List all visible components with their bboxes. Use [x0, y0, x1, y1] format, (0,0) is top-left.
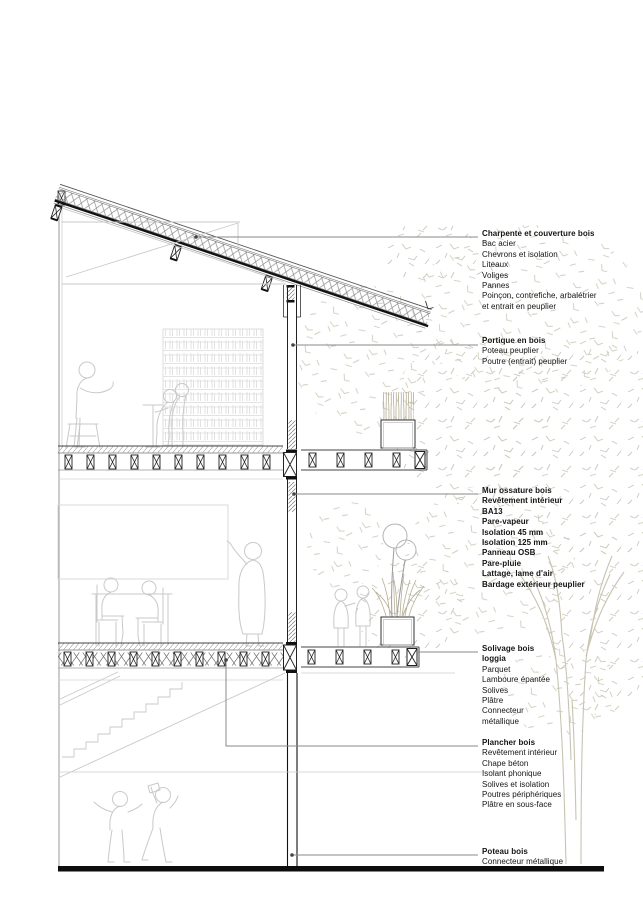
annotation-mur-ossature: Mur ossature boisRevêtement intérieurBA1… — [482, 486, 640, 590]
annotation-line: Plâtre en sous-face — [482, 800, 640, 810]
annotation-line: Parquet — [482, 665, 640, 675]
annotation-line: Poutre (entrait) peuplier — [482, 357, 640, 367]
floor-slab-ground — [58, 643, 283, 680]
annotation-line: Revêtement intérieur — [482, 748, 640, 758]
annotation-line: Solivage bois — [482, 644, 640, 654]
leader-poteau — [290, 853, 478, 857]
annotation-line: et entrait en peuplier — [482, 302, 640, 312]
annotation-line: Connecteur métallique — [482, 857, 640, 867]
annotation-line: Pannes — [482, 281, 640, 291]
annotation-line: Charpente et couverture bois — [482, 229, 640, 239]
annotation-line: Poteau peuplier — [482, 346, 640, 356]
annotation-portique: Portique en boisPoteau peuplierPoutre (e… — [482, 336, 640, 367]
annotation-line: Pare-vapeur — [482, 517, 640, 527]
annotation-line: Solives — [482, 686, 640, 696]
annotation-line: Liteaux — [482, 260, 640, 270]
annotation-line: Revêtement intérieur — [482, 496, 640, 506]
annotation-line: Panneau OSB — [482, 548, 640, 558]
annotation-line: Bardage extérieur peuplier — [482, 580, 640, 590]
annotation-line: Chape béton — [482, 759, 640, 769]
people-street-level — [94, 783, 178, 862]
annotation-line: Pare-pluie — [482, 559, 640, 569]
annotation-poteau: Poteau boisConnecteur métallique — [482, 847, 640, 868]
leader-plancher — [224, 658, 478, 746]
annotation-solivage: Solivage boisloggiaParquetLamboure épant… — [482, 644, 640, 727]
annotation-line: Poteau bois — [482, 847, 640, 857]
annotation-line: Isolation 45 mm — [482, 528, 640, 538]
truss-lines — [62, 208, 284, 282]
wall-board — [58, 505, 228, 579]
annotation-line: Portique en bois — [482, 336, 640, 346]
annotation-line: Plâtre — [482, 696, 640, 706]
floor-slab-level1 — [58, 446, 283, 479]
annotation-line: Mur ossature bois — [482, 486, 640, 496]
annotation-line: Bac acier — [482, 239, 640, 249]
left-wall — [58, 191, 65, 866]
annotation-line: Solives et isolation — [482, 780, 640, 790]
architectural-section-drawing: Charpente et couverture boisBac acierChe… — [0, 0, 643, 907]
annotation-line: Plancher bois — [482, 738, 640, 748]
annotation-line: Isolation 125 mm — [482, 538, 640, 548]
annotation-line: Connecteur — [482, 706, 640, 716]
annotation-line: Lattage, lame d'air — [482, 569, 640, 579]
person-standing-pointing — [227, 541, 265, 646]
annotation-line: Poutres périphériques — [482, 790, 640, 800]
annotation-line: Chevrons et isolation — [482, 250, 640, 260]
annotation-line: Voliges — [482, 271, 640, 281]
annotation-line: loggia — [482, 654, 640, 664]
annotation-plancher: Plancher boisRevêtement intérieurChape b… — [482, 738, 640, 811]
person-on-stool — [66, 362, 113, 448]
annotation-line: métallique — [482, 717, 640, 727]
annotation-line: Lamboure épantée — [482, 675, 640, 685]
annotation-charpente: Charpente et couverture boisBac acierChe… — [482, 229, 640, 312]
annotation-line: Poinçon, contrefiche, arbalétrier — [482, 291, 640, 301]
stairs — [58, 672, 285, 778]
annotation-line: Isolant phonique — [482, 769, 640, 779]
bookshelf — [163, 329, 263, 445]
people-seated-at-table — [92, 578, 172, 646]
planter-level1 — [381, 392, 415, 448]
annotation-line: BA13 — [482, 507, 640, 517]
